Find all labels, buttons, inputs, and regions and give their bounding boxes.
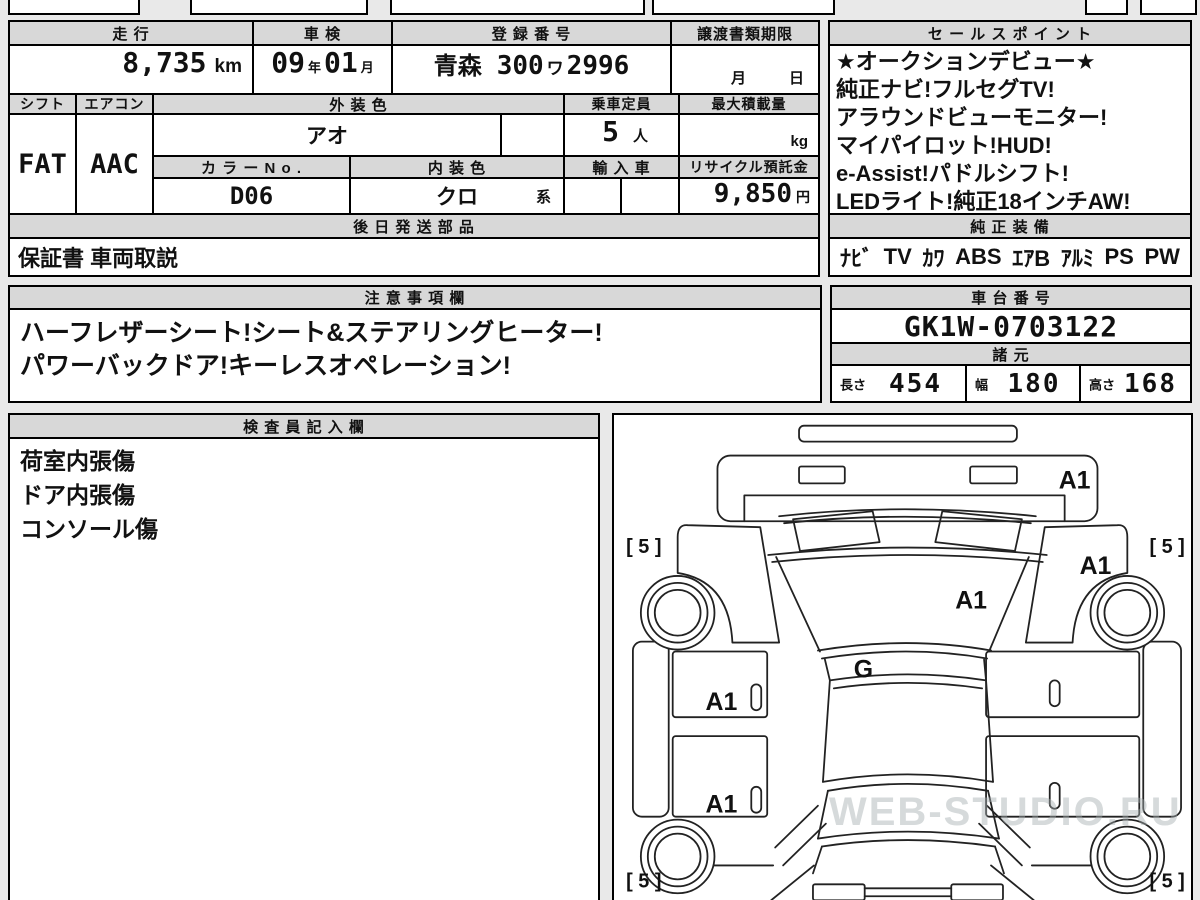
spec-length-cell: 長さ 454	[832, 366, 967, 401]
shift-value: FAT	[10, 115, 77, 215]
sales-points-body: ★オークションデビュー★ 純正ナビ!フルセグTV! アラウンドビューモニター! …	[830, 46, 1190, 215]
top-fragment-cell	[652, 0, 835, 15]
inspector-panel: 検 査 員 記 入 欄 荷室内張傷 ドア内張傷 コンソール傷	[8, 413, 600, 900]
top-fragment-cell	[8, 0, 140, 15]
cabin-left-side	[823, 680, 830, 781]
spec-length-value: 454	[866, 366, 965, 401]
rear-body-left	[818, 791, 828, 839]
tire-label-front-right: [ 5 ]	[1149, 536, 1184, 558]
sales-point-line: 純正ナビ!フルセグTV!	[836, 76, 1184, 104]
damage-label-front-door: A1	[706, 688, 738, 716]
rear-bumper-bars	[865, 888, 952, 896]
exterior-color-extra-cell	[502, 115, 565, 157]
interior-color-header: 内 装 色	[351, 157, 565, 179]
interior-color-text: クロ	[351, 179, 563, 213]
later-shipping-value: 保証書 車両取説	[10, 239, 818, 275]
door-handle-rear-right	[1050, 783, 1060, 809]
equipment-item: ﾅﾋﾞ	[840, 241, 873, 273]
equipment-item: ｴｱB	[1012, 241, 1050, 273]
rocker-panel-left	[633, 642, 669, 817]
car-top-view-diagram: A1 [ 5 ] [ 5 ] A1 A1 G A1 A1 [ 5 ] [ 5 ]	[614, 415, 1191, 900]
import-car-header: 輸 入 車	[565, 157, 680, 179]
spec-width-cell: 幅 180	[967, 366, 1081, 401]
recycle-deposit-header: リサイクル預託金	[680, 157, 818, 179]
damage-diagram-panel: A1 [ 5 ] [ 5 ] A1 A1 G A1 A1 [ 5 ] [ 5 ]…	[612, 413, 1193, 900]
transfer-deadline-value: 月 日	[672, 46, 818, 95]
recycle-deposit-value: 9,850 円	[680, 179, 818, 215]
equipment-item: ｱﾙﾐ	[1061, 241, 1094, 273]
spec-width-label: 幅	[975, 374, 988, 393]
inspector-line: ドア内張傷	[20, 478, 588, 512]
color-no-value: D06	[154, 179, 351, 215]
note-line: ハーフレザーシート!シート&ステアリングヒーター!	[20, 317, 810, 350]
equipment-item: ABS	[955, 244, 1001, 270]
transfer-deadline-header: 譲渡書類期限	[672, 22, 818, 46]
later-shipping-header: 後 日 発 送 部 品	[10, 215, 818, 239]
capacity-number: 5	[602, 115, 619, 148]
front-bumper	[717, 456, 1097, 522]
equipment-item: PS	[1104, 244, 1133, 270]
inspector-header: 検 査 員 記 入 欄	[10, 415, 598, 439]
front-door-right	[986, 652, 1139, 718]
sales-point-line: ★オークションデビュー★	[836, 48, 1184, 76]
spec-width-value: 180	[989, 366, 1079, 401]
recycle-deposit-number: 9,850	[714, 179, 792, 209]
shaken-year: 09	[271, 46, 305, 79]
sales-point-line: LEDライト!純正18インチAW!	[836, 188, 1184, 215]
color-no-header: カ ラ ー N o .	[154, 157, 351, 179]
top-fragment-cell	[1085, 0, 1128, 15]
equipment-item: TV	[884, 244, 912, 270]
registration-number: 2996	[567, 51, 630, 81]
sales-point-line: マイパイロット!HUD!	[836, 132, 1184, 160]
tire-label-rear-left: [ 5 ]	[626, 870, 661, 892]
inspector-body: 荷室内張傷 ドア内張傷 コンソール傷	[10, 439, 598, 900]
equipment-header: 純 正 装 備	[830, 215, 1190, 239]
shaken-header: 車 検	[254, 22, 393, 46]
top-fragment-cell	[1140, 0, 1197, 15]
sales-points-header: セ ー ル ス ポ イ ン ト	[830, 22, 1190, 46]
liftgate-arcs	[818, 832, 999, 847]
interior-color-value: クロ 系	[351, 179, 565, 215]
mileage-unit: km	[215, 56, 242, 78]
damage-label-hood: A1	[955, 587, 987, 615]
spec-height-value: 168	[1111, 366, 1190, 401]
wheel-front-right	[1091, 576, 1165, 650]
spec-length-label: 長さ	[840, 374, 866, 393]
rear-corner-left	[771, 865, 814, 900]
hood-left-edge	[776, 557, 820, 652]
chassis-header: 車 台 番 号	[832, 287, 1190, 310]
rear-bumper-right-piece	[951, 884, 1003, 900]
rear-lower-left	[813, 847, 822, 874]
chassis-panel: 車 台 番 号 GK1W-0703122 諸 元 長さ 454 幅 180 高さ…	[830, 285, 1192, 403]
exterior-color-header: 外 装 色	[154, 95, 565, 115]
notes-body: ハーフレザーシート!シート&ステアリングヒーター! パワーバックドア!キーレスオ…	[10, 310, 820, 401]
cowl-arcs	[818, 643, 991, 658]
door-handle-front-right	[1050, 680, 1060, 706]
damage-label-bumper: A1	[1059, 466, 1091, 494]
registration-table: 走 行 車 検 登 録 番 号 譲渡書類期限 8,735 km 09 年 01 …	[8, 20, 820, 277]
sales-point-line: アラウンドビューモニター!	[836, 104, 1184, 132]
chassis-number: GK1W-0703122	[832, 310, 1190, 344]
equipment-item: ｶﾜ	[922, 241, 944, 273]
hood-right-edge	[989, 557, 1029, 652]
registration-area: 青森	[434, 46, 482, 81]
aircon-header: エアコン	[77, 95, 154, 115]
tire-label-rear-right: [ 5 ]	[1149, 870, 1184, 892]
rear-bumper-left-piece	[813, 884, 865, 900]
registration-class: 300	[497, 51, 544, 81]
registration-kana: ワ	[547, 54, 564, 79]
import-car-cell-2	[622, 179, 680, 215]
notes-panel: 注 意 事 項 欄 ハーフレザーシート!シート&ステアリングヒーター! パワーバ…	[8, 285, 822, 403]
shaken-month-unit: 月	[361, 57, 374, 76]
shaken-month: 01	[324, 46, 358, 79]
equipment-item: PW	[1144, 244, 1179, 270]
tire-label-front-left: [ 5 ]	[626, 536, 661, 558]
inspector-line: コンソール傷	[20, 512, 588, 546]
registration-no-value: 青森 300 ワ 2996	[393, 46, 672, 95]
mileage-header: 走 行	[10, 22, 254, 46]
a-pillar-left	[825, 659, 830, 680]
wheel-front-left	[641, 576, 715, 650]
capacity-value: 5 人	[565, 115, 680, 157]
sales-points-panel: セ ー ル ス ポ イ ン ト ★オークションデビュー★ 純正ナビ!フルセグTV…	[828, 20, 1192, 277]
max-load-value: kg	[680, 115, 818, 157]
bumper-left-vent	[799, 466, 845, 483]
damage-label-rear-door: A1	[706, 791, 738, 819]
registration-no-header: 登 録 番 号	[393, 22, 672, 46]
notes-header: 注 意 事 項 欄	[10, 287, 820, 310]
rocker-panel-right	[1143, 642, 1181, 817]
rear-door-right	[986, 736, 1139, 817]
door-handle-rear-left	[751, 787, 761, 813]
spec-height-cell: 高さ 168	[1081, 366, 1190, 401]
door-handle-front-left	[751, 684, 761, 710]
capacity-unit: 人	[633, 125, 648, 146]
deadline-month-label: 月	[731, 67, 746, 88]
mileage-number: 8,735	[122, 46, 206, 79]
front-spoiler	[799, 426, 1017, 442]
damage-label-glass: G	[854, 655, 873, 683]
aircon-value: AAC	[77, 115, 154, 215]
inspector-line: 荷室内張傷	[20, 444, 588, 478]
max-load-header: 最大積載量	[680, 95, 818, 115]
shift-header: シフト	[10, 95, 77, 115]
interior-color-suffix: 系	[536, 186, 551, 207]
rear-corner-right	[991, 865, 1034, 900]
deadline-day-label: 日	[789, 67, 804, 88]
equipment-body: ﾅﾋﾞ TV ｶﾜ ABS ｴｱB ｱﾙﾐ PS PW	[830, 239, 1190, 275]
damage-label-right-fender: A1	[1080, 552, 1112, 580]
shaken-year-unit: 年	[308, 57, 321, 76]
specs-header: 諸 元	[832, 344, 1190, 366]
exterior-color-value: アオ	[154, 115, 502, 157]
max-load-unit: kg	[790, 133, 808, 150]
rear-window-arcs	[823, 774, 993, 790]
top-fragment-cell	[190, 0, 368, 15]
note-line: パワーバックドア!キーレスオペレーション!	[20, 350, 810, 383]
import-car-cell-1	[565, 179, 622, 215]
bumper-right-vent	[970, 466, 1017, 483]
shaken-value: 09 年 01 月	[254, 46, 393, 95]
recycle-deposit-unit: 円	[796, 187, 810, 207]
mileage-value: 8,735 km	[10, 46, 254, 95]
cabin-right-side	[986, 680, 993, 781]
capacity-header: 乗車定員	[565, 95, 680, 115]
sales-point-line: e-Assist!パドルシフト!	[836, 160, 1184, 188]
auction-sheet: 走 行 車 検 登 録 番 号 譲渡書類期限 8,735 km 09 年 01 …	[0, 0, 1200, 900]
top-fragment-cell	[390, 0, 645, 15]
